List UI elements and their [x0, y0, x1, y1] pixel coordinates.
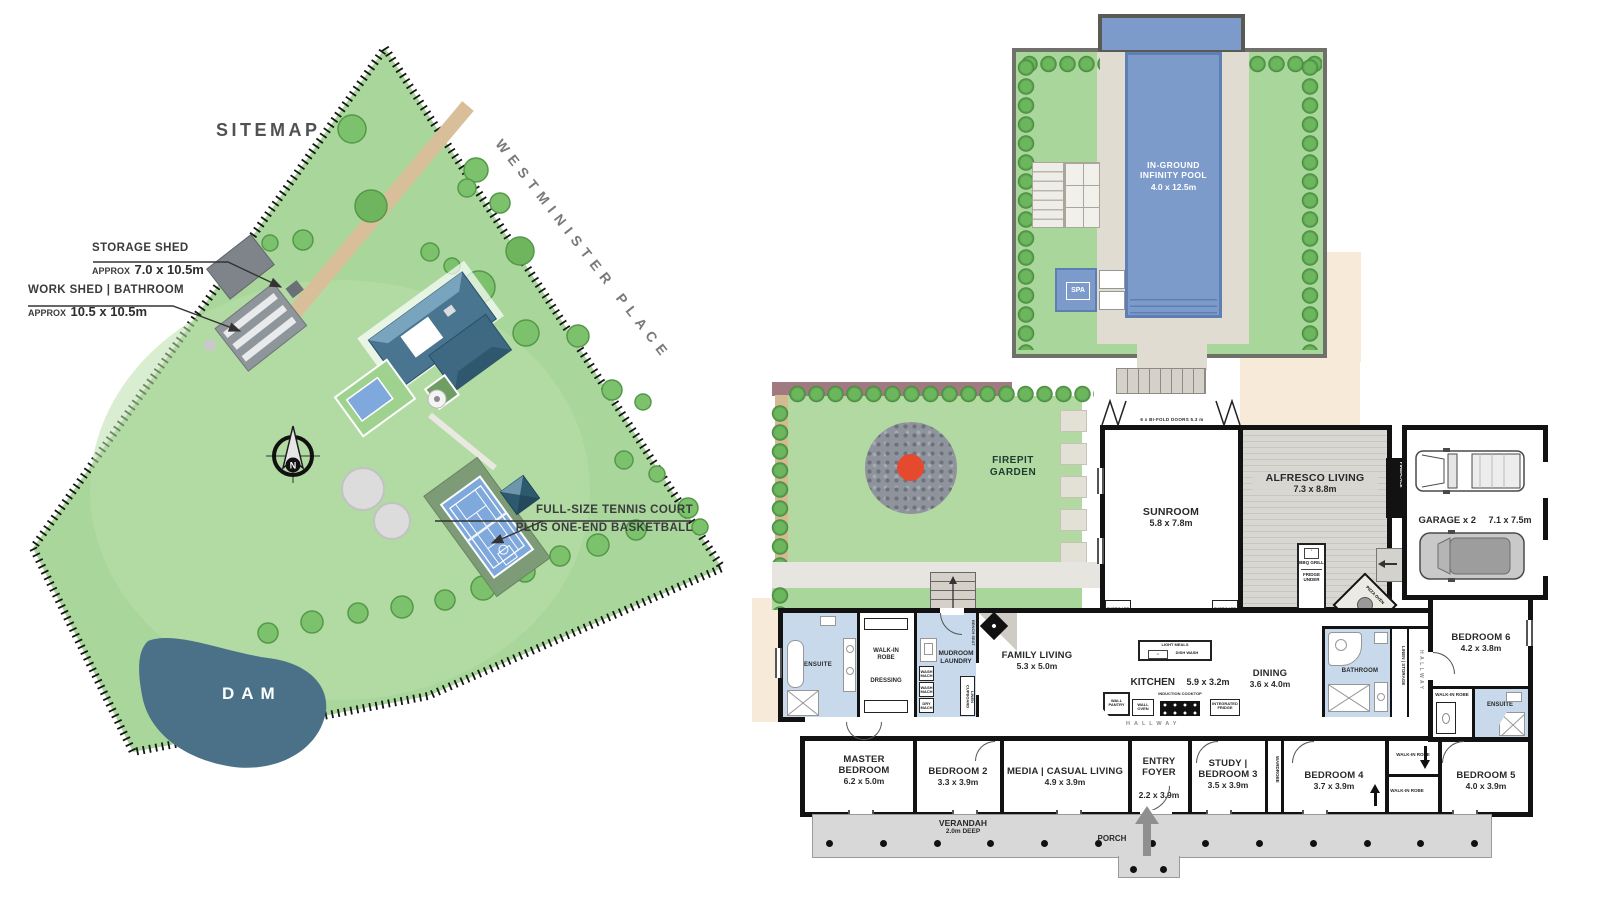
master-bedroom-name: MASTER BEDROOM — [828, 754, 900, 776]
sitemap-drawing: N — [0, 0, 760, 900]
kitchen-dims: 5.9 x 3.2m — [1186, 677, 1229, 687]
up-arrow-icon — [1370, 784, 1380, 793]
alfresco-label: ALFRESCO LIVING 7.3 x 8.8m — [1252, 472, 1378, 495]
bench-seat-label: BENCH SEAT — [964, 620, 976, 664]
spa: SPA — [1055, 268, 1097, 312]
dryer: DRY MACH — [919, 698, 934, 713]
wall — [1407, 626, 1409, 717]
bedroom5-dims: 4.0 x 3.9m — [1442, 781, 1530, 791]
lawn-strip — [772, 588, 1082, 610]
kitchen-name: KITCHEN — [1131, 677, 1175, 688]
dining-label: DINING 3.6 x 4.0m — [1240, 668, 1300, 689]
storage-shed-title: STORAGE SHED — [92, 242, 228, 258]
work-shed-approx: APPROX — [28, 308, 66, 318]
bifold-door-icon — [1100, 399, 1130, 426]
kitchen-island: LIGHT MEALS ·· DISH WASH — [1138, 640, 1212, 661]
pool-dims: 4.0 x 12.5m — [1128, 182, 1219, 192]
pool-name: IN-GROUND INFINITY POOL — [1128, 160, 1219, 180]
robe-arrow-stem — [1424, 746, 1427, 760]
family-living-name: FAMILY LIVING — [990, 650, 1084, 661]
pool-steps — [1032, 162, 1064, 228]
tennis-callout-line2: PLUS ONE-END BASKETBALL — [435, 519, 693, 534]
backdrop — [1327, 252, 1361, 362]
garage-label: GARAGE x 2 7.1 x 7.5m — [1408, 510, 1542, 529]
entry-steps — [1116, 368, 1206, 394]
hedge — [770, 586, 790, 610]
bbq-island: · BBQ GRILL FRIDGE UNDER — [1297, 543, 1326, 613]
sunroom-name: SUNROOM — [1121, 506, 1221, 518]
sunroom-dims: 5.8 x 7.8m — [1121, 518, 1221, 529]
sunroom-label: SUNROOM 5.8 x 7.8m — [1121, 506, 1221, 529]
walkin-b-label: WALK-IN ROBE — [1390, 788, 1424, 793]
window — [1097, 468, 1104, 494]
wall-oven: WALL OVEN — [1132, 699, 1154, 716]
verandah-name: VERANDAH — [918, 818, 1008, 828]
work-shed-title: WORK SHED | BATHROOM — [28, 284, 178, 300]
pool-end-lines — [1130, 294, 1217, 314]
verandah-label: VERANDAH 2.0m DEEP — [918, 818, 1008, 836]
garage-window — [1542, 540, 1550, 576]
shower — [787, 690, 819, 716]
tennis-callout: FULL-SIZE TENNIS COURT PLUS ONE-END BASK… — [435, 504, 693, 534]
bifold-doors-label: 6 x BI-FOLD DOORS 5.3 m — [1124, 417, 1220, 422]
dam-label: DAM — [222, 684, 282, 704]
dining-dims: 3.6 x 4.0m — [1240, 679, 1300, 689]
tennis-callout-line1: FULL-SIZE TENNIS COURT — [435, 504, 693, 519]
shed-tank — [204, 339, 216, 351]
hedge — [788, 384, 1094, 404]
pool-walkway — [1137, 344, 1207, 370]
bedroom5-name: BEDROOM 5 — [1442, 770, 1530, 781]
wall — [976, 695, 979, 717]
bathroom-label: BATHROOM — [1332, 668, 1388, 675]
vanity — [843, 638, 856, 692]
spa-step — [1099, 291, 1125, 310]
toilet — [820, 616, 836, 626]
porch-step — [1118, 856, 1180, 878]
down-arrow-icon — [1420, 760, 1430, 769]
hedge — [1300, 58, 1320, 350]
study-dims: 3.5 x 3.9m — [1196, 780, 1260, 790]
stepping-stones — [1060, 410, 1087, 560]
hedge — [770, 404, 790, 564]
light-meals-label: LIGHT MEALS — [1140, 643, 1210, 647]
wardrobe-unit — [1436, 702, 1456, 734]
window — [1526, 620, 1533, 646]
bedroom4-name: BEDROOM 4 — [1288, 770, 1380, 781]
spa-step — [1099, 270, 1125, 289]
backdrop — [1240, 358, 1360, 426]
storage-shed-dims: 7.0 x 10.5m — [134, 262, 203, 277]
pool-label: IN-GROUND INFINITY POOL 4.0 x 12.5m — [1128, 160, 1219, 192]
robe-arrow-stem — [1374, 792, 1377, 806]
firepit-fire — [897, 454, 924, 481]
bedroom2-label: BEDROOM 2 3.3 x 3.9m — [920, 766, 996, 787]
family-living-label: FAMILY LIVING 5.3 x 5.0m — [990, 650, 1084, 671]
storage-shed-callout: STORAGE SHED APPROX 7.0 x 10.5m — [92, 242, 228, 279]
washing-machine: WASH MACH — [919, 666, 934, 681]
suv-vehicle — [1418, 530, 1526, 582]
verandah-dims: 2.0m DEEP — [918, 828, 1008, 836]
basin — [1506, 692, 1522, 702]
dressing-label: DRESSING — [866, 678, 906, 685]
entry-arrow-icon — [1135, 806, 1159, 824]
media-dims: 4.9 x 3.9m — [1002, 777, 1128, 787]
wall — [1472, 689, 1475, 739]
walkin-master-label: WALK-IN ROBE — [866, 648, 906, 662]
firepit-garden-label: FIREPIT GARDEN — [984, 455, 1042, 479]
garage-name: GARAGE x 2 — [1418, 515, 1476, 526]
wall-pantry: WALL PANTRY — [1103, 692, 1130, 716]
wall — [1385, 740, 1389, 814]
property-plan-image: N SITEMAP WESTMINISTER PLACE STORAGE SHE… — [0, 0, 1600, 900]
kitchen-label: KITCHEN 5.9 x 3.2m — [1115, 672, 1245, 691]
ensuite-master-label: ENSUITE — [796, 662, 840, 669]
wall — [1390, 626, 1392, 717]
wall — [913, 740, 917, 814]
storage-shed-approx: APPROX — [92, 266, 130, 276]
fountain-center — [434, 396, 440, 402]
alfresco-name: ALFRESCO LIVING — [1252, 472, 1378, 484]
ensuite-bed6-label: ENSUITE — [1480, 702, 1520, 709]
window — [1097, 538, 1104, 564]
bedroom6-label: BEDROOM 6 4.2 x 3.8m — [1437, 632, 1525, 653]
door-direction-box — [1376, 548, 1404, 582]
work-shed-callout: WORK SHED | BATHROOM APPROX 10.5 x 10.5m — [28, 284, 178, 321]
walkin-bed6-label: WALK-IN ROBE — [1434, 692, 1470, 697]
bedroom2-dims: 3.3 x 3.9m — [920, 777, 996, 787]
master-bedroom-label: MASTER BEDROOM 6.2 x 5.0m — [828, 754, 900, 786]
pool-storage — [1064, 162, 1100, 228]
pool-infinity-end — [1098, 14, 1245, 54]
wardrobe-unit — [864, 700, 908, 713]
dining-name: DINING — [1240, 668, 1300, 679]
hallway-side-label: HALLWAY — [1412, 650, 1424, 710]
garage-dims: 7.1 x 7.5m — [1488, 515, 1531, 525]
entry-foyer-name: ENTRY FOYER — [1136, 756, 1182, 778]
bedroom6-name: BEDROOM 6 — [1437, 632, 1525, 643]
bedroom6-dims: 4.2 x 3.8m — [1437, 643, 1525, 653]
shower — [1328, 684, 1370, 712]
toilet — [1374, 632, 1388, 644]
bifold-door-icon — [1214, 399, 1244, 426]
garage-window — [1542, 462, 1550, 498]
verandah-posts — [826, 840, 1478, 847]
dishwasher-label: DISH WASH — [1172, 651, 1202, 655]
porch-label: PORCH — [1090, 834, 1134, 843]
window — [775, 648, 782, 678]
induction-cooktop — [1160, 701, 1200, 716]
linen-cupboard: LINEN CUPBOARD — [960, 676, 975, 716]
ute-vehicle — [1414, 448, 1526, 494]
wardrobe-unit — [864, 618, 908, 630]
bedroom4-dims: 3.7 x 3.9m — [1288, 781, 1380, 791]
family-living-dims: 5.3 x 5.0m — [990, 661, 1084, 671]
fridge-under-label: FRIDGE UNDER — [1299, 573, 1324, 583]
wall — [1428, 686, 1533, 689]
bedroom5-label: BEDROOM 5 4.0 x 3.9m — [1442, 770, 1530, 791]
wardrobe-label: WARDROBE — [1268, 756, 1280, 808]
integrated-fridge: INTEGRATED FRIDGE — [1210, 699, 1240, 716]
work-shed-dims: 10.5 x 10.5m — [70, 304, 147, 319]
master-bedroom-dims: 6.2 x 5.0m — [828, 776, 900, 786]
sitemap-title: SITEMAP — [216, 120, 321, 141]
wall — [1281, 740, 1284, 814]
compass-north-label: N — [290, 461, 297, 471]
porch-post — [1160, 866, 1167, 873]
media-label: MEDIA | CASUAL LIVING 4.9 x 3.9m — [1002, 766, 1128, 787]
wall — [857, 613, 860, 717]
wall — [1322, 626, 1325, 717]
wall — [1128, 740, 1132, 814]
bedroom4-label: BEDROOM 4 3.7 x 3.9m — [1288, 770, 1380, 791]
bbq-grill-label: BBQ GRILL — [1299, 561, 1324, 566]
wall — [914, 613, 917, 717]
wall — [1385, 774, 1440, 777]
hallway-main-label: HALLWAY — [1126, 721, 1180, 727]
media-name: MEDIA | CASUAL LIVING — [1002, 766, 1128, 777]
washing-machine: WASH MACH — [919, 682, 934, 697]
wall — [1188, 740, 1192, 814]
vanity — [1374, 682, 1388, 712]
wall — [1322, 626, 1428, 629]
bedroom2-name: BEDROOM 2 — [920, 766, 996, 777]
wall — [976, 613, 979, 663]
linen-storage-label: LINEN | STORAGE — [1394, 646, 1406, 702]
porch-post — [1130, 866, 1137, 873]
induction-cooktop-label: INDUCTION COOKTOP — [1158, 692, 1202, 697]
spa-label: SPA — [1066, 282, 1090, 300]
alfresco-dims: 7.3 x 8.8m — [1252, 484, 1378, 495]
entry-arrow-stem — [1143, 822, 1151, 856]
left-arrow-icon — [1378, 560, 1385, 568]
laundry-sink — [920, 638, 937, 662]
